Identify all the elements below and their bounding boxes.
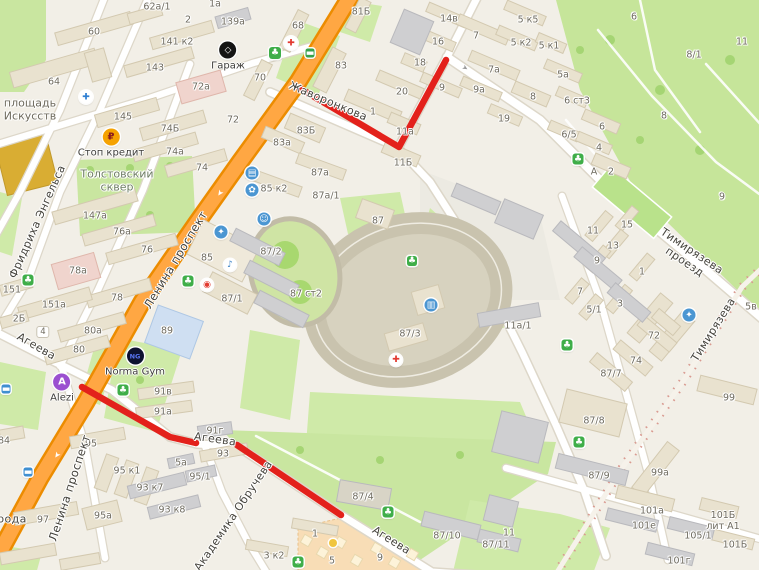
poi-marker[interactable]: ♣ bbox=[407, 256, 417, 266]
poi-icon[interactable]: ♣ bbox=[407, 256, 417, 266]
poi-icon[interactable]: ♣ bbox=[383, 507, 394, 518]
poi-label: Стоп кредит bbox=[78, 148, 144, 159]
poi-icon[interactable]: ✦ bbox=[683, 309, 696, 322]
poi-marker[interactable]: ◉ bbox=[201, 279, 213, 291]
poi-marker[interactable]: ✚ bbox=[80, 91, 93, 104]
poi-marker[interactable]: ✦ bbox=[683, 309, 696, 322]
poi-icon[interactable]: ♣ bbox=[183, 276, 194, 287]
poi-marker-labeled[interactable]: A Alezi bbox=[50, 374, 74, 404]
poi-icon[interactable]: ✚ bbox=[80, 91, 93, 104]
poi-marker[interactable] bbox=[329, 539, 337, 547]
poi-icon[interactable]: ▬ bbox=[2, 385, 11, 394]
route-number-badge: 4 bbox=[36, 326, 49, 338]
poi-marker[interactable]: ▬ bbox=[2, 385, 11, 394]
poi-marker[interactable]: ✚ bbox=[285, 37, 298, 50]
poi-icon[interactable]: ▥ bbox=[425, 299, 438, 312]
poi-icon[interactable]: ♣ bbox=[118, 385, 129, 396]
map-graphics bbox=[0, 0, 759, 570]
poi-label: Alezi bbox=[50, 393, 74, 404]
poi-icon[interactable]: ✦ bbox=[215, 226, 228, 239]
poi-icon[interactable]: ☺ bbox=[258, 213, 271, 226]
poi-marker[interactable]: ▬ bbox=[24, 468, 33, 477]
poi-marker[interactable]: ♣ bbox=[118, 385, 129, 396]
poi-icon[interactable]: ✿ bbox=[246, 184, 259, 197]
poi-label: Norma Gym bbox=[105, 367, 165, 378]
map-canvas[interactable]: 62а/11а2139а60141 к21436472а1457274Б74а7… bbox=[0, 0, 759, 570]
poi-icon[interactable]: ♣ bbox=[269, 47, 281, 59]
poi-icon[interactable]: ▬ bbox=[24, 468, 33, 477]
poi-marker[interactable]: ♣ bbox=[573, 154, 584, 165]
poi-marker[interactable]: ♣ bbox=[269, 47, 281, 59]
poi-icon[interactable]: A bbox=[54, 374, 71, 391]
poi-icon[interactable]: ◉ bbox=[201, 279, 213, 291]
poi-marker[interactable]: ✿ bbox=[246, 184, 259, 197]
poi-marker[interactable]: ☺ bbox=[258, 213, 271, 226]
poi-marker[interactable]: ♪ bbox=[224, 259, 236, 271]
poi-icon[interactable]: ♪ bbox=[224, 259, 236, 271]
poi-icon[interactable]: ▬ bbox=[306, 49, 315, 58]
poi-marker[interactable]: ▬ bbox=[306, 49, 315, 58]
poi-marker[interactable]: ♣ bbox=[23, 275, 34, 286]
poi-marker[interactable]: ♣ bbox=[574, 437, 585, 448]
poi-icon[interactable]: ₽ bbox=[102, 129, 119, 146]
poi-icon[interactable]: ✚ bbox=[285, 37, 298, 50]
poi-marker[interactable]: ♣ bbox=[183, 276, 194, 287]
poi-marker[interactable]: ✦ bbox=[215, 226, 228, 239]
poi-icon[interactable]: ♣ bbox=[23, 275, 34, 286]
poi-marker-labeled[interactable]: NG Norma Gym bbox=[105, 348, 165, 378]
poi-icon[interactable]: ♣ bbox=[293, 557, 304, 568]
poi-marker[interactable]: ♣ bbox=[293, 557, 304, 568]
poi-icon[interactable]: ♣ bbox=[562, 340, 573, 351]
poi-icon[interactable]: ♣ bbox=[574, 437, 585, 448]
poi-marker[interactable]: ▤ bbox=[246, 167, 259, 180]
poi-marker-labeled[interactable]: ◇ Гараж bbox=[211, 42, 245, 72]
poi-icon[interactable]: ◇ bbox=[220, 42, 237, 59]
poi-icon[interactable]: NG bbox=[127, 348, 144, 365]
poi-label: Гараж bbox=[211, 61, 245, 72]
poi-marker[interactable]: ▥ bbox=[425, 299, 438, 312]
poi-icon[interactable] bbox=[329, 539, 337, 547]
poi-icon[interactable]: ✚ bbox=[390, 354, 402, 366]
poi-marker-labeled[interactable]: ₽ Стоп кредит bbox=[78, 129, 144, 159]
poi-marker[interactable]: ♣ bbox=[562, 340, 573, 351]
poi-marker[interactable]: ✚ bbox=[390, 354, 402, 366]
poi-icon[interactable]: ♣ bbox=[573, 154, 584, 165]
poi-marker[interactable]: ♣ bbox=[383, 507, 394, 518]
poi-icon[interactable]: ▤ bbox=[246, 167, 259, 180]
